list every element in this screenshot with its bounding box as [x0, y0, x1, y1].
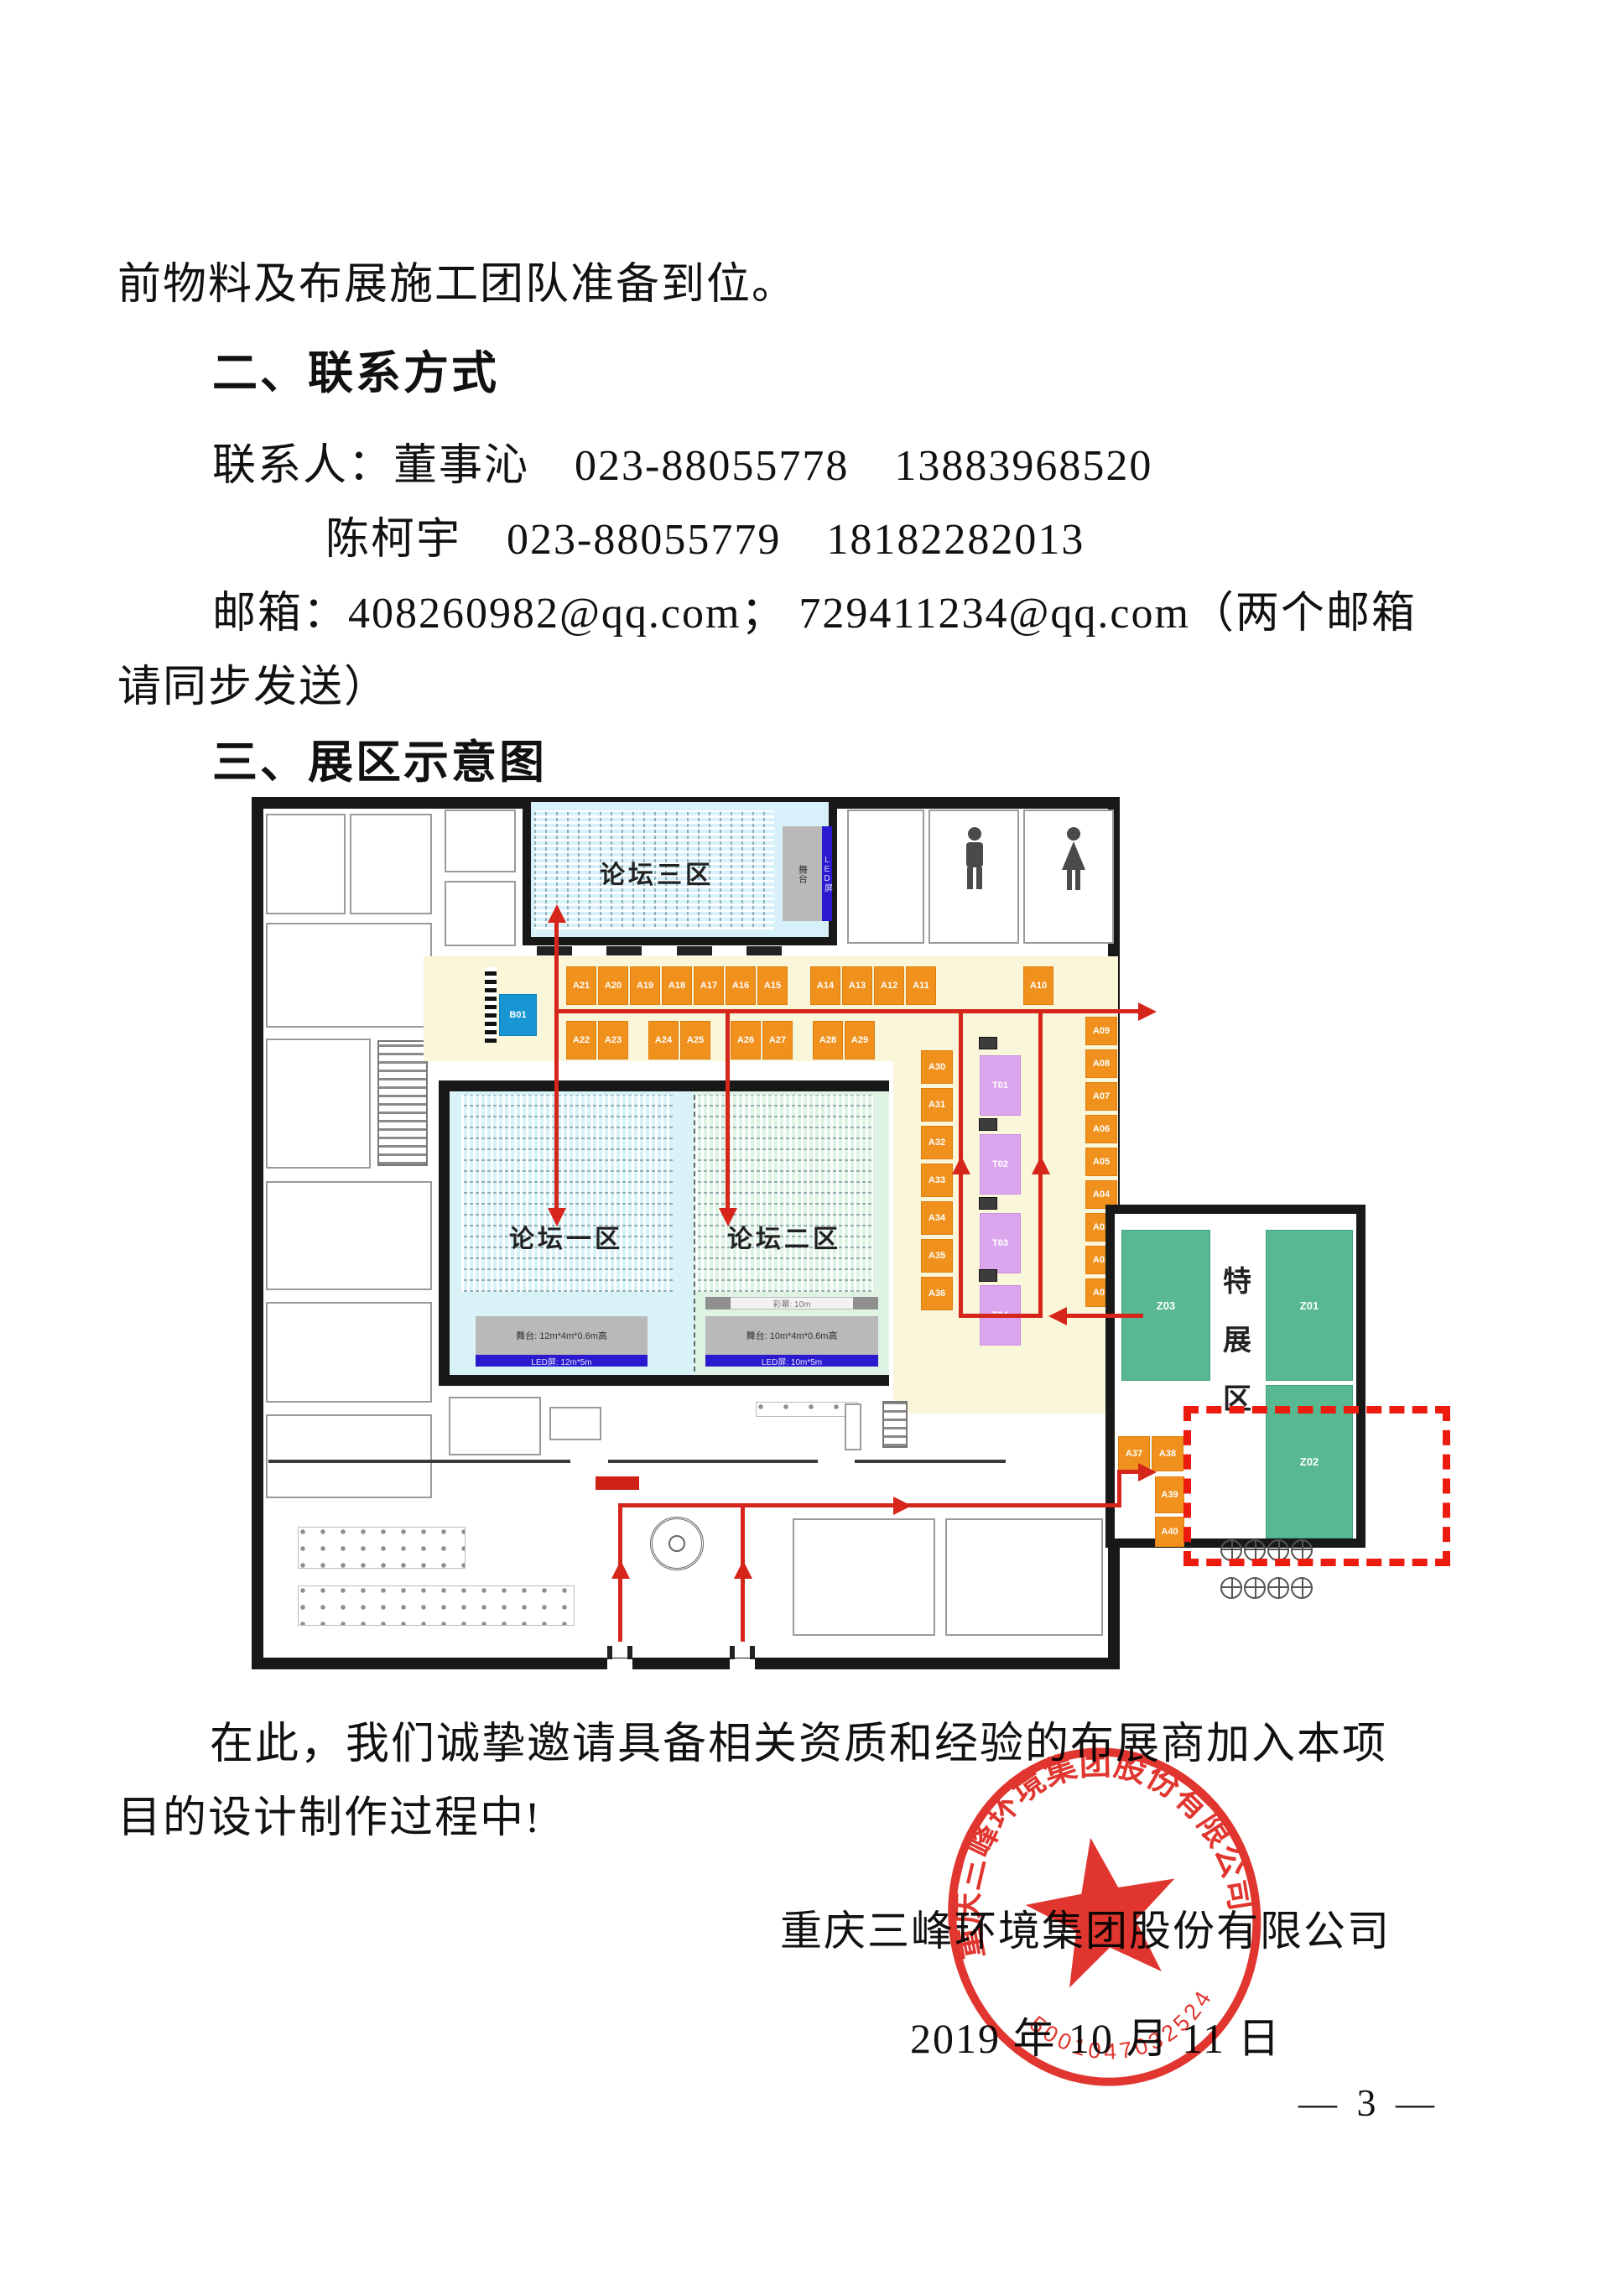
booth-a09: A09: [1085, 1017, 1117, 1045]
special-zone-label-char1: 特: [1223, 1258, 1255, 1299]
booth-a30: A30: [921, 1050, 953, 1084]
email-line-2: 请同步发送）: [117, 651, 389, 714]
company-seal: 重庆三峰环境集团股份有限公司 5001047032524: [900, 1710, 1311, 2135]
path-arrow-up: [548, 904, 566, 923]
equipment-icon: [979, 1118, 997, 1131]
back-of-house-room: [266, 1414, 432, 1498]
meeting-table: [549, 1407, 601, 1440]
forum-zone1-led: LED屏: 12m*5m: [476, 1355, 648, 1367]
booth-t02: T02: [980, 1134, 1021, 1195]
booth-a05: A05: [1085, 1148, 1117, 1176]
lobby-room: [449, 1397, 541, 1455]
forum-zone2-seats: [695, 1095, 873, 1292]
highlight-dashed-zone: [1183, 1406, 1450, 1566]
back-of-house-room: [266, 1039, 371, 1169]
booth-z03: Z03: [1121, 1230, 1210, 1381]
path-arrow-up: [952, 1156, 970, 1174]
turnstile-icon: [1291, 1577, 1313, 1599]
path-main-horizontal: [556, 1009, 1140, 1013]
back-of-house-room: [266, 814, 346, 914]
registration-hatch: [485, 967, 497, 1043]
restaurant-seating: [298, 1585, 575, 1626]
booth-a15: A15: [757, 966, 788, 1005]
stairs: [882, 1401, 908, 1448]
booth-a28: A28: [813, 1021, 843, 1059]
path-arrow-down: [719, 1208, 737, 1226]
upper-right-room: [847, 810, 924, 944]
booth-a18: A18: [662, 966, 692, 1005]
booth-t03: T03: [980, 1213, 1021, 1273]
contact-line-1: 联系人：董事沁 023-88055778 13883968520: [212, 430, 1152, 492]
path-bottom-connector: [959, 1314, 1043, 1318]
door-frame: [677, 946, 712, 955]
back-of-house-room: [266, 1302, 432, 1403]
path-vertical-2: [726, 1011, 730, 1210]
door-leaf: [627, 1646, 632, 1659]
lobby-wall: [608, 1460, 818, 1463]
lobby-room: [793, 1518, 935, 1636]
path-arrow-up: [734, 1560, 752, 1579]
forum-zone3-led: LED屏: [822, 826, 832, 921]
stairs: [377, 1040, 428, 1166]
page-number: — 3 —: [1298, 2080, 1439, 2125]
path-into-wing: [1117, 1470, 1141, 1474]
screen-cap-left: [705, 1297, 731, 1309]
path-wing-riser: [1117, 1470, 1121, 1507]
entrance-gap: [607, 1658, 632, 1670]
equipment-icon: [979, 1197, 997, 1210]
booth-a21: A21: [566, 966, 596, 1005]
booth-a32: A32: [921, 1126, 953, 1159]
door-leaf: [750, 1646, 755, 1659]
booth-b01: B01: [499, 994, 537, 1036]
forum-zone1-stage: 舞台: 12m*4m*0.6m高: [476, 1316, 648, 1355]
equipment-icon: [979, 1269, 997, 1282]
booth-a08: A08: [1085, 1049, 1117, 1078]
path-arrow-left: [1048, 1307, 1067, 1325]
booth-z01: Z01: [1266, 1230, 1353, 1381]
booth-a11: A11: [906, 966, 936, 1005]
lounge-seating: [298, 1527, 466, 1569]
lobby-wall: [268, 1460, 570, 1463]
booth-a40: A40: [1155, 1517, 1184, 1547]
special-zone-label-char2: 展: [1223, 1317, 1255, 1358]
booth-t01: T01: [980, 1055, 1021, 1116]
path-from-wing: [1066, 1314, 1143, 1318]
path-arrow-down: [548, 1208, 566, 1226]
door-frame: [606, 946, 642, 955]
turnstile-icon: [1244, 1577, 1266, 1599]
back-of-house-room: [350, 814, 432, 914]
booth-a27: A27: [762, 1021, 793, 1059]
booth-a39: A39: [1155, 1476, 1184, 1513]
booth-a17: A17: [694, 966, 724, 1005]
booth-a10: A10: [1023, 966, 1053, 1005]
path-arrow-up: [1032, 1156, 1050, 1174]
forum-zone2-stage: 舞台: 10m*4m*0.6m高: [705, 1316, 878, 1355]
sign-red-box: [596, 1476, 639, 1490]
booth-a34: A34: [921, 1201, 953, 1235]
booth-a24: A24: [648, 1021, 679, 1059]
forum-zone3-stage: 舞台: [783, 826, 822, 921]
booth-a06: A06: [1085, 1115, 1117, 1143]
path-arrow-up: [611, 1560, 630, 1579]
kitchen-room: [266, 1181, 432, 1290]
booth-a12: A12: [874, 966, 904, 1005]
path-arrow-into-wing: [1138, 1463, 1157, 1481]
path-vertical-1: [554, 921, 559, 1210]
upper-left-room: [445, 810, 516, 872]
booth-a13: A13: [842, 966, 872, 1005]
path-lobby-horizontal: [618, 1503, 1121, 1507]
booth-a14: A14: [810, 966, 840, 1005]
booth-a31: A31: [921, 1088, 953, 1122]
heading-map: 三、展区示意图: [212, 725, 547, 791]
svg-text:5001047032524: 5001047032524: [1022, 1980, 1227, 2079]
door-frame: [746, 946, 782, 955]
booth-a33: A33: [921, 1164, 953, 1197]
door-leaf: [730, 1646, 735, 1659]
forum-zone1-seats: [461, 1095, 673, 1292]
seal-number: 5001047032524: [1022, 1980, 1227, 2079]
contact-line-2: 陈柯宇 023-88055779 18182282013: [325, 503, 1085, 566]
forum-zone3-label: 论坛三区: [600, 854, 714, 891]
booth-a35: A35: [921, 1239, 953, 1273]
equipment-icon: [979, 1037, 997, 1049]
heading-contact: 二、联系方式: [212, 336, 499, 402]
back-of-house-room: [266, 923, 432, 1028]
forum-zone1-label: 论坛一区: [509, 1218, 623, 1255]
booth-a07: A07: [1085, 1082, 1117, 1111]
counter-seats: [756, 1402, 858, 1417]
booth-a19: A19: [630, 966, 660, 1005]
entrance-gap: [730, 1658, 755, 1670]
booth-a29: A29: [845, 1021, 875, 1059]
counter-return: [845, 1403, 861, 1450]
forum-zone2-label: 论坛二区: [727, 1218, 841, 1255]
turnstile-icon: [1267, 1577, 1289, 1599]
door-leaf: [607, 1646, 612, 1659]
booth-a25: A25: [680, 1021, 710, 1059]
exhibition-floor-plan: 论坛三区 舞台 LED屏 B01 A21 A20 A19 A18 A17 A16…: [247, 789, 1472, 1678]
upper-left-room: [445, 881, 516, 946]
turnstile-icon: [1220, 1577, 1242, 1599]
booth-a20: A20: [598, 966, 628, 1005]
screen-cap-right: [853, 1297, 878, 1309]
forum-zone2-led: LED屏: 10m*5m: [705, 1355, 878, 1367]
booth-a23: A23: [598, 1021, 628, 1059]
screen-label: 彩幕: 10m: [772, 1297, 810, 1309]
path-arrow-right-mid: [893, 1497, 912, 1515]
booth-a22: A22: [566, 1021, 596, 1059]
lobby-room: [945, 1518, 1103, 1636]
email-line-1: 邮箱：408260982@qq.com； 729411234@qq.com（两个…: [212, 577, 1417, 640]
lobby-wall: [855, 1460, 1006, 1463]
paragraph-continuation: 前物料及布展施工团队准备到位。: [117, 248, 797, 311]
info-kiosk-core: [668, 1535, 685, 1552]
booth-a36: A36: [921, 1277, 953, 1310]
booth-a16: A16: [726, 966, 756, 1005]
booth-a26: A26: [731, 1021, 761, 1059]
closing-line-2: 目的设计制作过程中!: [117, 1782, 541, 1845]
path-arrow-right: [1138, 1002, 1157, 1021]
seal-star-icon: [1016, 1825, 1190, 1993]
